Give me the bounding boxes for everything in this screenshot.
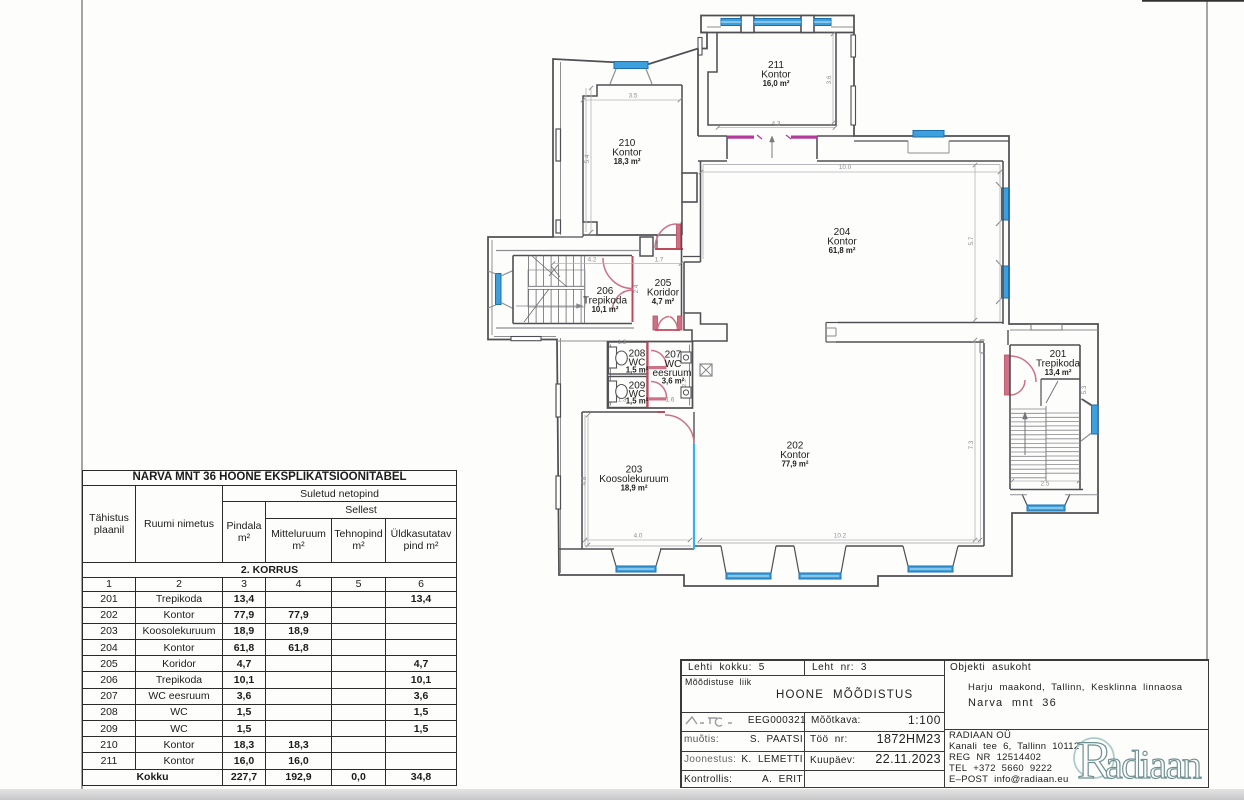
svg-text:4.0: 4.0 xyxy=(634,533,643,540)
svg-text:5.3: 5.3 xyxy=(1081,385,1088,394)
svg-text:16,0 m²: 16,0 m² xyxy=(763,79,790,88)
svg-text:4.3: 4.3 xyxy=(772,121,781,128)
svg-text:1,5 m²: 1,5 m² xyxy=(626,397,649,406)
svg-text:18,9 m²: 18,9 m² xyxy=(621,484,648,493)
svg-text:1.7: 1.7 xyxy=(655,257,664,264)
svg-text:3.5: 3.5 xyxy=(629,93,638,100)
svg-text:2.4: 2.4 xyxy=(633,284,640,293)
svg-text:3,6 m²: 3,6 m² xyxy=(662,377,685,386)
svg-text:1.3: 1.3 xyxy=(618,339,627,346)
svg-text:61,8 m²: 61,8 m² xyxy=(829,246,856,255)
svg-text:1.6: 1.6 xyxy=(666,397,675,404)
svg-text:3.6: 3.6 xyxy=(826,75,833,84)
svg-text:10,1 m²: 10,1 m² xyxy=(592,305,619,314)
svg-text:4,7 m²: 4,7 m² xyxy=(652,297,675,306)
svg-text:10.0: 10.0 xyxy=(839,164,852,171)
svg-text:10.2: 10.2 xyxy=(834,533,847,540)
svg-text:adiaan: adiaan xyxy=(1105,742,1202,787)
svg-text:18,3 m²: 18,3 m² xyxy=(614,157,641,166)
svg-text:5.7: 5.7 xyxy=(968,236,975,245)
svg-text:5.4: 5.4 xyxy=(584,154,591,163)
svg-text:2.5: 2.5 xyxy=(1041,481,1050,488)
svg-text:4.8: 4.8 xyxy=(581,476,588,485)
svg-text:7.3: 7.3 xyxy=(968,440,975,449)
svg-text:77,9 m²: 77,9 m² xyxy=(782,460,809,469)
svg-text:1,5 m²: 1,5 m² xyxy=(626,366,649,375)
svg-text:13,4 m²: 13,4 m² xyxy=(1045,368,1072,377)
svg-text:4.2: 4.2 xyxy=(588,257,597,264)
